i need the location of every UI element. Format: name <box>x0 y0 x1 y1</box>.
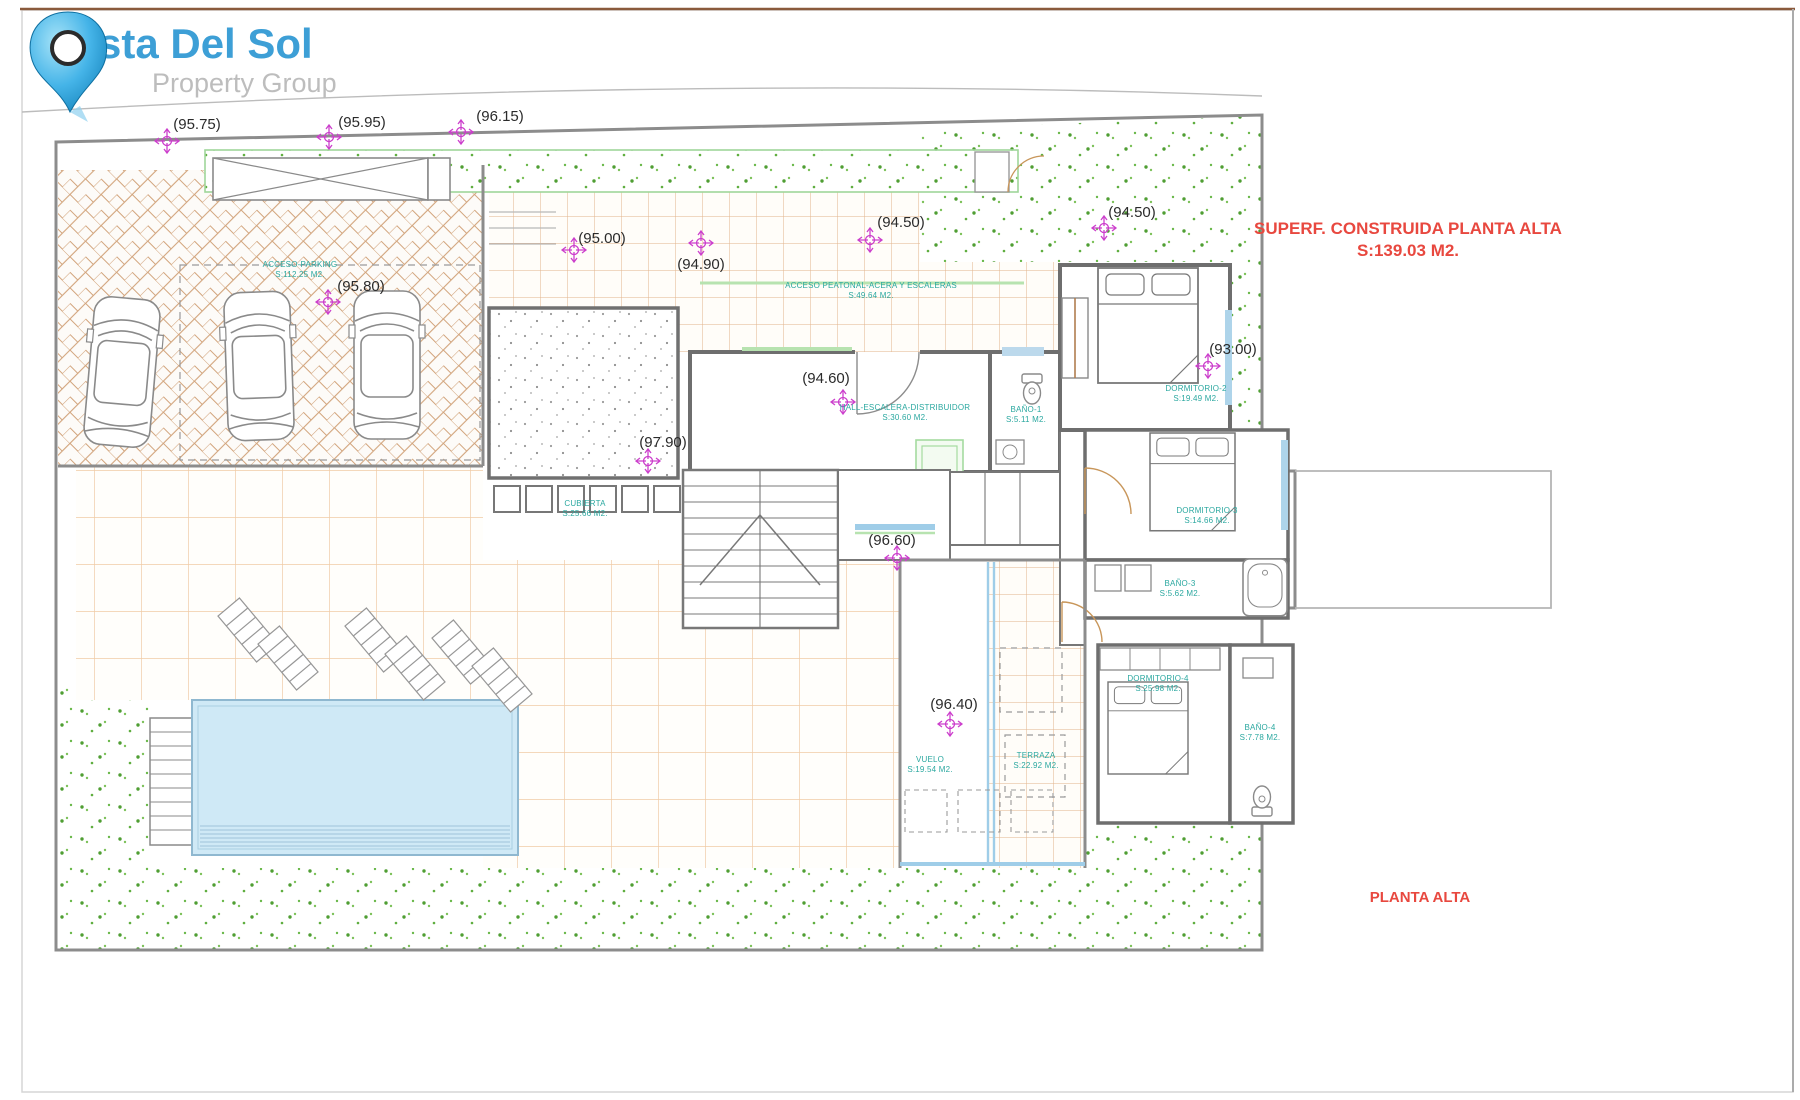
room-area: S:5.11 M2. <box>1006 415 1046 424</box>
elevation-label: (93.00) <box>1209 341 1257 358</box>
elevation-label: (96.40) <box>930 696 978 713</box>
room-name: DORMITORIO-3 <box>1176 506 1238 515</box>
car <box>218 291 299 442</box>
room-area: S:49.64 M2. <box>848 291 893 300</box>
room-area: S:7.78 M2. <box>1240 733 1281 742</box>
carport-strip <box>205 150 1044 200</box>
elevation-label: (96.15) <box>476 108 524 125</box>
elevation-label: (97.90) <box>639 434 687 451</box>
built-surface-title: SUPERF. CONSTRUIDA PLANTA ALTA <box>1254 219 1562 238</box>
elevation-label: (94.90) <box>677 256 725 273</box>
sink <box>996 440 1024 464</box>
elevation-label: (95.95) <box>338 114 386 131</box>
swimming-pool <box>192 700 518 855</box>
room-area: S:25.98 M2. <box>1135 684 1180 693</box>
elevation-label: (94.50) <box>877 214 925 231</box>
room-name: DORMITORIO-4 <box>1127 674 1189 683</box>
room-area: S:5.62 M2. <box>1160 589 1201 598</box>
logo-subtitle: Property Group <box>152 68 337 98</box>
elevation-label: (95.80) <box>337 278 385 295</box>
window-blue <box>1002 347 1044 356</box>
sink <box>1125 565 1151 591</box>
pillar <box>428 158 450 200</box>
room-area: S:25.66 M2. <box>562 509 607 518</box>
elevation-label: (96.60) <box>868 532 916 549</box>
elevation-label: (95.00) <box>578 230 626 247</box>
pool-zone <box>150 700 518 855</box>
elevation-label: (94.50) <box>1108 204 1156 221</box>
room-name: DORMITORIO-2 <box>1165 384 1227 393</box>
sink <box>1243 658 1273 678</box>
floor-plan-canvas: (95.75) (95.95) (96.15) (95.00) (94.90) … <box>0 0 1800 1100</box>
room-name: CUBIERTA <box>564 499 606 508</box>
car <box>349 291 425 439</box>
room-name: ACCESO PEATONAL-ACERA Y ESCALERAS <box>785 281 957 290</box>
room-name: VUELO <box>916 755 944 764</box>
room-name: TERRAZA <box>1017 751 1056 760</box>
room-name: BAÑO-3 <box>1165 579 1196 588</box>
room-area: S:14.66 M2. <box>1184 516 1229 525</box>
room-name: BAÑO-1 <box>1011 405 1042 414</box>
room-name: HALL-ESCALERA-DISTRIBUIDOR <box>840 403 971 412</box>
plan-sheet: (95.75) (95.95) (96.15) (95.00) (94.90) … <box>0 0 1800 1100</box>
elevation-label: (95.75) <box>173 116 221 133</box>
pool-steps <box>150 718 192 845</box>
closet <box>950 472 1060 545</box>
room-area: S:112.25 M2. <box>275 270 324 279</box>
room-area: S:30.60 M2. <box>882 413 927 422</box>
room-dormitorio-2 <box>1060 265 1232 430</box>
room-area: S:19.49 M2. <box>1173 394 1218 403</box>
elevation-label: (94.60) <box>802 370 850 387</box>
sink <box>1095 565 1121 591</box>
plan-title: PLANTA ALTA <box>1370 889 1471 906</box>
side-gate <box>975 152 1009 192</box>
built-surface-value: S:139.03 M2. <box>1357 241 1459 260</box>
room-area: S:19.54 M2. <box>907 765 952 774</box>
room-area: S:22.92 M2. <box>1013 761 1058 770</box>
window-blue <box>1281 440 1288 530</box>
room-name: ACCESO-PARKING <box>263 260 338 269</box>
room-name: BAÑO-4 <box>1245 723 1276 732</box>
